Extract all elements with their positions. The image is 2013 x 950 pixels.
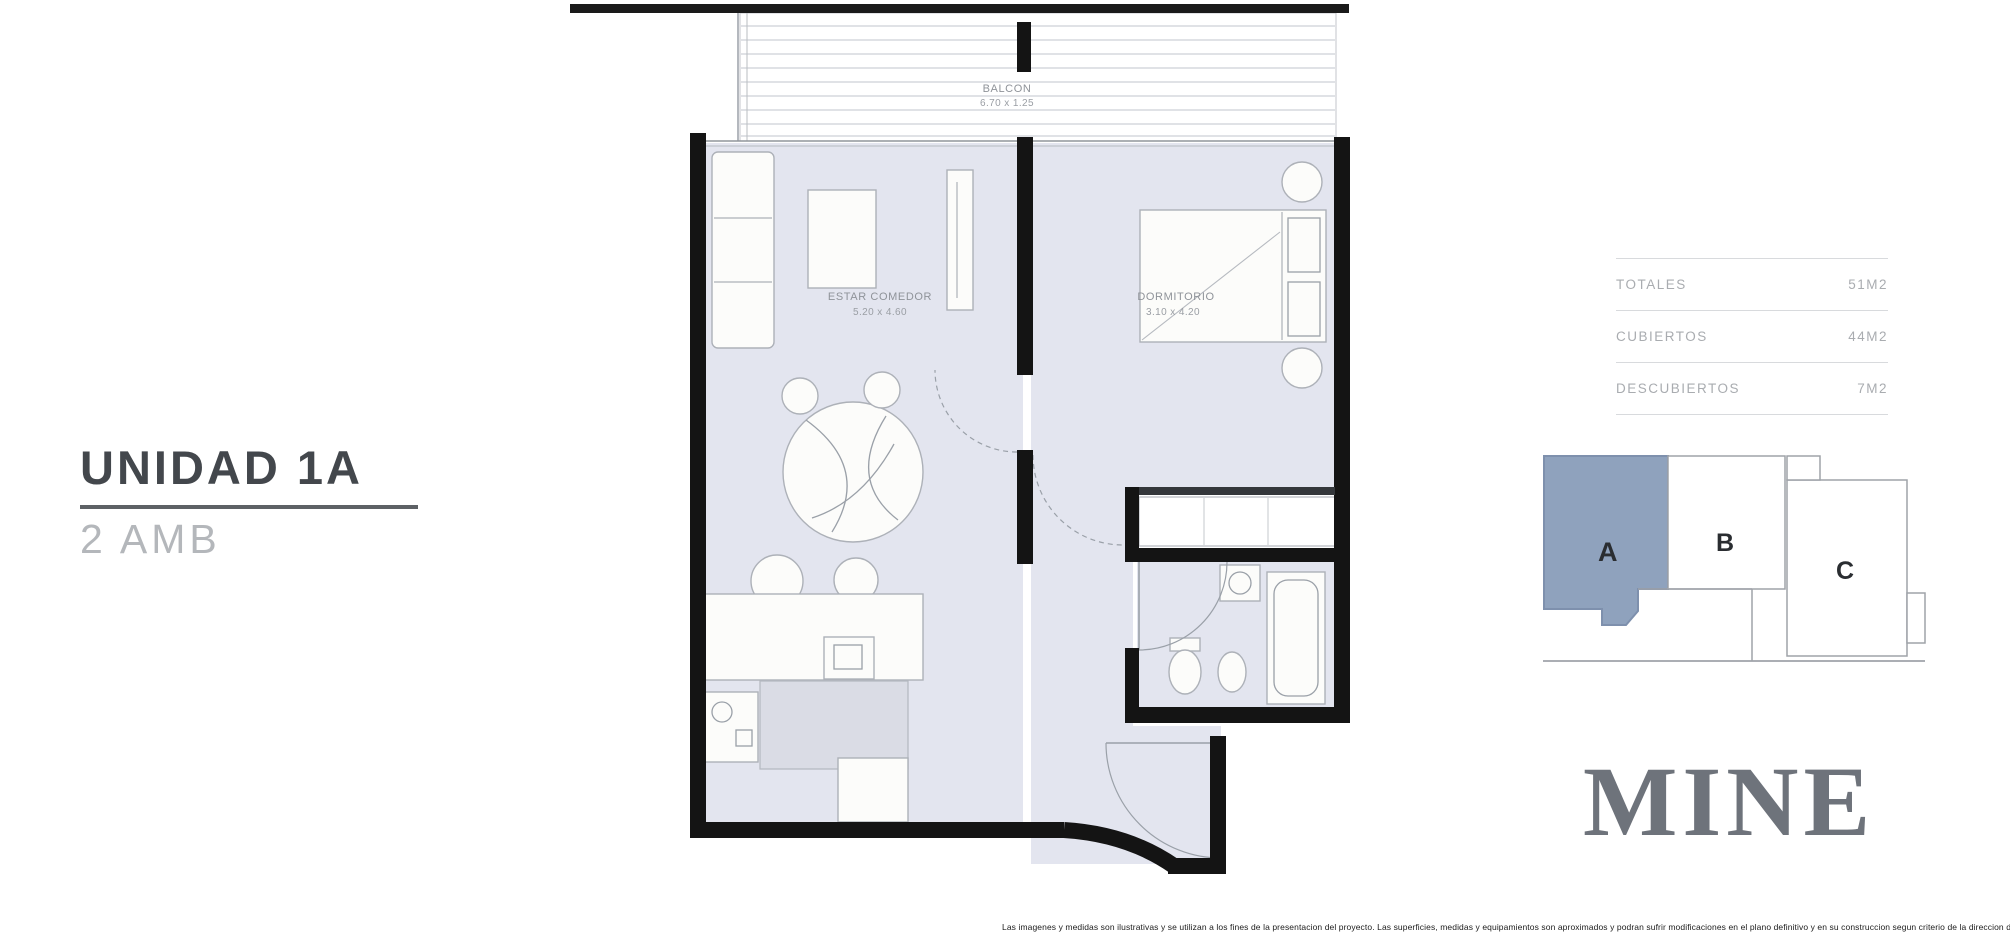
balcony-dims: 6.70 x 1.25	[980, 98, 1034, 109]
kitchen-sink	[824, 637, 874, 679]
table-row: DESCUBIERTOS 7M2	[1616, 362, 1888, 415]
row-value: 44M2	[1848, 329, 1888, 344]
dining-table	[783, 402, 923, 542]
bathtub	[1267, 572, 1325, 704]
tv-unit	[947, 170, 973, 310]
kitchen-island	[760, 681, 908, 769]
row-value: 7M2	[1857, 381, 1888, 396]
unit-key-c-stub	[1787, 456, 1820, 480]
nightstand	[1282, 162, 1322, 202]
laundry-unit	[704, 692, 758, 762]
page-subtitle: 2 AMB	[80, 519, 418, 560]
unit-key-label-b: B	[1716, 529, 1734, 557]
parapet-wall	[570, 4, 1349, 13]
balcony-label: BALCON	[983, 83, 1032, 95]
bedroom-dims: 3.10 x 4.20	[1146, 307, 1200, 318]
table-row: TOTALES 51M2	[1616, 258, 1888, 310]
sofa	[712, 152, 774, 348]
unit-key-label-c: C	[1836, 557, 1854, 585]
unit-key-label-a: A	[1598, 537, 1618, 567]
wall-divider-upper	[1017, 137, 1033, 375]
toilet-tank	[1170, 638, 1200, 651]
wall-divider-lower	[1017, 450, 1033, 564]
living-dims: 5.20 x 4.60	[853, 307, 907, 318]
bed	[1140, 210, 1326, 342]
wall-bathroom-bottom	[1128, 707, 1350, 723]
dining-chair	[864, 372, 900, 408]
row-label: DESCUBIERTOS	[1616, 381, 1740, 396]
row-value: 51M2	[1848, 277, 1888, 292]
dining-chair	[782, 378, 818, 414]
coffee-table	[808, 190, 876, 288]
wall-closet-back	[1125, 487, 1335, 495]
row-label: CUBIERTOS	[1616, 329, 1708, 344]
table-row: CUBIERTOS 44M2	[1616, 310, 1888, 362]
legal-fine-print: Las imagenes y medidas son ilustrativas …	[1002, 922, 2010, 932]
unit-key-b-shape	[1668, 456, 1785, 589]
bidet	[1218, 652, 1246, 692]
wall-right	[1334, 137, 1350, 723]
bedroom-label: DORMITORIO	[1137, 291, 1214, 303]
bathroom-vanity	[1220, 565, 1260, 601]
wall-bathroom-left-lower	[1125, 648, 1139, 723]
unit-key-c-notch	[1907, 593, 1925, 643]
brand-logo: MINE	[1583, 752, 1875, 852]
hall-floor	[1031, 366, 1133, 730]
balcony-terrace: BALCON 6.70 x 1.25	[570, 4, 1349, 141]
toilet	[1169, 650, 1201, 694]
nightstand	[1282, 348, 1322, 388]
balcony-divider-wall	[1017, 22, 1031, 72]
areas-table: TOTALES 51M2 CUBIERTOS 44M2 DESCUBIERTOS…	[1616, 258, 1888, 415]
plan-sheet: BALCON 6.70 x 1.25	[0, 0, 2013, 950]
wall-left	[690, 133, 706, 838]
wall-bottom	[690, 822, 1064, 838]
closet	[1139, 497, 1335, 546]
kitchen-appliance	[838, 758, 908, 822]
page-title: UNIDAD 1A	[80, 444, 418, 491]
title-underline	[80, 505, 418, 509]
title-block: UNIDAD 1A 2 AMB	[80, 444, 418, 560]
kitchen-counter	[705, 594, 923, 680]
wall-entry-right	[1210, 736, 1226, 874]
living-label: ESTAR COMEDOR	[828, 291, 932, 303]
row-label: TOTALES	[1616, 277, 1687, 292]
unit-key-diagram: A B C	[1543, 456, 1925, 661]
wall-bathroom-top	[1125, 548, 1350, 562]
